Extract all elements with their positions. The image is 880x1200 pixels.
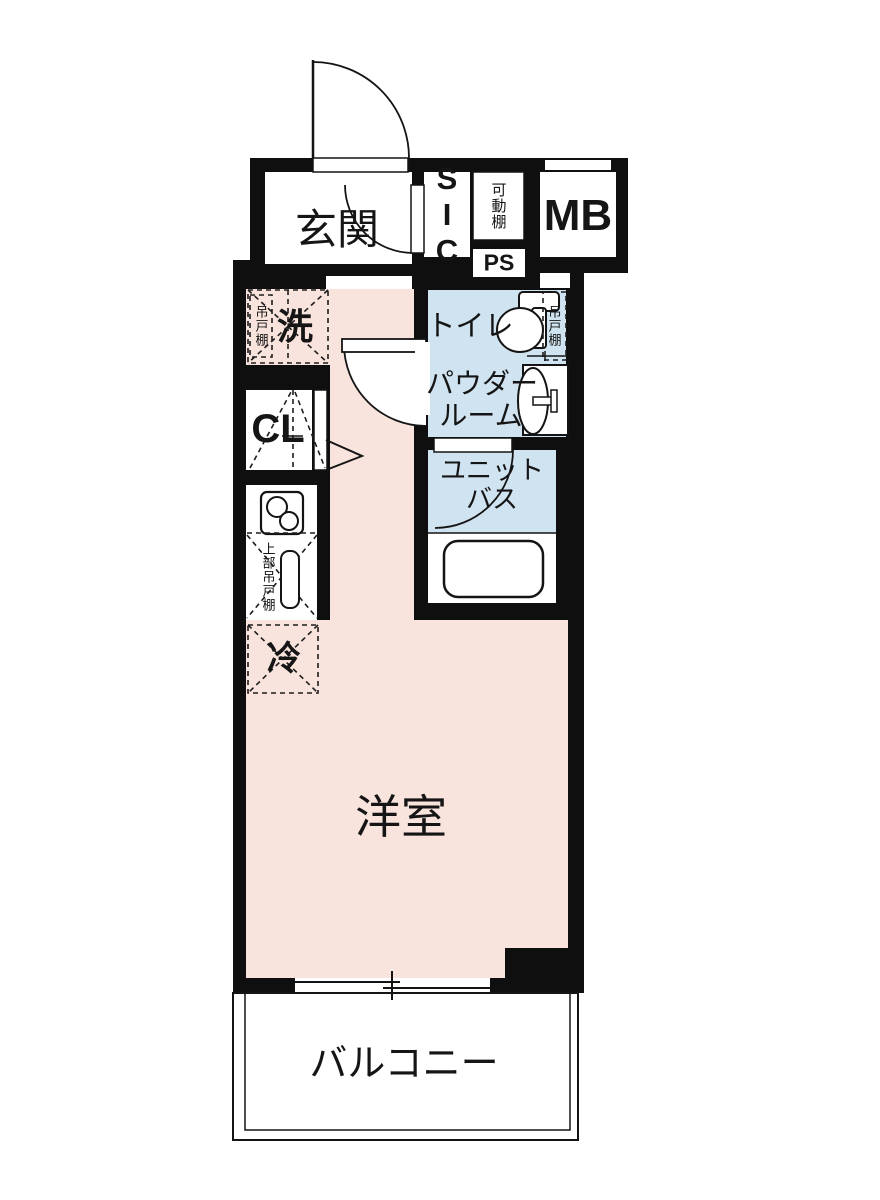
floor-plan: 玄関 SIC 可動棚 MB PS 洗 吊戸棚 トイレ 吊戸棚 パウダー ルーム … [0, 0, 880, 1200]
toilet-label: トイレ [426, 313, 513, 342]
closet-door-panel [314, 390, 327, 470]
bathtub [444, 541, 543, 597]
movable-shelf-label: 可動棚 [491, 182, 506, 230]
unit-bath-label-line2: バス [466, 486, 518, 512]
kitchen-upper-cupboard-label: 上部吊戸棚 [262, 542, 275, 612]
entrance-door-arc [313, 62, 409, 158]
unit-bath-label-line1: ユニット [440, 457, 544, 483]
sic-label: SIC [432, 161, 463, 269]
genkan-opening [326, 276, 412, 289]
mb-top-notch [545, 160, 611, 170]
kitchen-sink [281, 551, 299, 608]
genkan-label: 玄関 [295, 209, 379, 251]
powder-room-label-line1: パウダー [426, 370, 538, 398]
refrigerator-label: 冷 [267, 642, 301, 676]
powder-room-label-line2: ルーム [439, 402, 522, 430]
balcony-label: バルコニー [309, 1045, 498, 1083]
wall-notch [540, 273, 570, 288]
western-room-label: 洋室 [355, 794, 447, 840]
mb-label: MB [544, 194, 612, 238]
ps-label: PS [484, 252, 515, 275]
burner-icon [280, 512, 298, 530]
washer-cupboard-label: 吊戸棚 [255, 305, 268, 347]
stove-fixture [261, 492, 303, 534]
closet-label: CL [251, 409, 304, 449]
bottom-right-wall [505, 948, 584, 993]
washer-label: 洗 [277, 309, 313, 345]
toilet-cupboard-label: 吊戸棚 [548, 305, 561, 347]
entrance-door [313, 60, 409, 172]
